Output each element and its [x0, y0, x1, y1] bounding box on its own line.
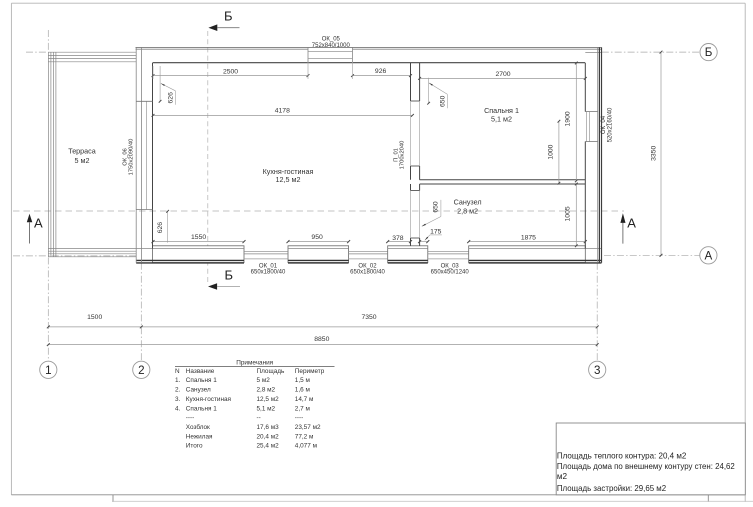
svg-text:1875: 1875: [521, 235, 536, 242]
svg-text:Б: Б: [225, 268, 234, 283]
svg-text:1750х2090/40: 1750х2090/40: [128, 139, 134, 176]
svg-text:3350: 3350: [650, 146, 657, 161]
svg-text:1.: 1.: [175, 377, 181, 384]
svg-text:3: 3: [594, 364, 600, 377]
svg-text:ОК_01: ОК_01: [259, 263, 278, 269]
svg-text:650: 650: [439, 95, 446, 107]
svg-text:4.: 4.: [175, 405, 181, 412]
svg-text:Периметр: Периметр: [295, 368, 325, 375]
svg-text:1500: 1500: [87, 314, 102, 321]
svg-text:2700: 2700: [495, 71, 510, 78]
svg-text:----: ----: [295, 415, 304, 422]
svg-text:5 м2: 5 м2: [257, 377, 271, 384]
svg-text:12,5 м2: 12,5 м2: [257, 396, 280, 403]
svg-text:П_01: П_01: [394, 148, 400, 162]
svg-text:520х2160/40: 520х2160/40: [607, 107, 613, 142]
svg-text:Итого: Итого: [186, 443, 203, 450]
svg-text:8850: 8850: [314, 336, 329, 343]
svg-text:2,8 м2: 2,8 м2: [457, 206, 478, 215]
svg-text:Площадь застройки: 29,65 м2: Площадь застройки: 29,65 м2: [557, 484, 667, 493]
svg-text:2,7 м: 2,7 м: [295, 405, 310, 412]
svg-text:650х1800/40: 650х1800/40: [350, 270, 385, 276]
svg-text:3.: 3.: [175, 396, 181, 403]
svg-text:950: 950: [311, 234, 323, 241]
svg-text:ОК_02: ОК_02: [358, 263, 377, 269]
svg-text:1005: 1005: [564, 206, 571, 221]
svg-text:Б: Б: [705, 46, 713, 59]
svg-text:ОК_05: ОК_05: [322, 37, 341, 43]
svg-text:5,1 м2: 5,1 м2: [491, 115, 512, 124]
svg-text:650: 650: [432, 201, 439, 213]
svg-text:2.: 2.: [175, 387, 181, 394]
svg-text:4,077 м: 4,077 м: [295, 443, 317, 450]
svg-text:7350: 7350: [361, 314, 376, 321]
svg-text:Хозблок: Хозблок: [186, 423, 210, 431]
svg-text:Площадь: Площадь: [257, 368, 285, 375]
svg-text:378: 378: [392, 235, 404, 242]
svg-text:Терраса: Терраса: [68, 147, 96, 156]
svg-text:Санузел: Санузел: [186, 387, 211, 394]
svg-text:--: --: [257, 415, 261, 422]
svg-text:626: 626: [157, 222, 164, 234]
svg-text:1,6 м: 1,6 м: [295, 387, 310, 394]
svg-text:Б: Б: [224, 8, 233, 23]
svg-text:926: 926: [375, 68, 387, 75]
svg-text:ОК_03: ОК_03: [441, 263, 460, 269]
svg-text:Кухня-гостиная: Кухня-гостиная: [186, 396, 232, 403]
svg-text:650х450/1240: 650х450/1240: [431, 270, 470, 276]
svg-text:ОК_04: ОК_04: [601, 115, 607, 134]
svg-text:Спальня 1: Спальня 1: [186, 405, 217, 412]
svg-text:77,2 м: 77,2 м: [295, 433, 314, 440]
svg-text:17,6 м3: 17,6 м3: [257, 424, 280, 431]
svg-text:м2: м2: [557, 472, 568, 481]
svg-text:1: 1: [45, 364, 51, 377]
svg-text:1000: 1000: [548, 144, 555, 159]
svg-text:А: А: [627, 216, 636, 231]
svg-text:Площадь теплого контура: 20,4: Площадь теплого контура: 20,4 м2: [557, 452, 687, 461]
svg-text:752х840/1000: 752х840/1000: [312, 43, 351, 49]
svg-text:1900: 1900: [565, 111, 572, 126]
svg-text:Площадь дома по внешнему конту: Площадь дома по внешнему контуру стен: 2…: [557, 462, 735, 471]
svg-text:23,57 м2: 23,57 м2: [295, 424, 321, 431]
svg-text:Санузел: Санузел: [454, 197, 482, 206]
svg-text:25,4 м2: 25,4 м2: [257, 443, 280, 450]
svg-text:1700х2040: 1700х2040: [400, 141, 406, 170]
svg-text:626: 626: [168, 92, 175, 104]
svg-text:Спальня 1: Спальня 1: [484, 106, 519, 115]
svg-text:5 м2: 5 м2: [75, 156, 90, 165]
svg-text:N: N: [175, 368, 180, 375]
svg-text:2: 2: [138, 364, 144, 377]
svg-text:5,1 м2: 5,1 м2: [257, 405, 276, 412]
svg-text:Нежилая: Нежилая: [186, 433, 213, 440]
svg-text:650х1800/40: 650х1800/40: [251, 270, 286, 276]
svg-text:Примечания: Примечания: [236, 360, 273, 367]
svg-text:2500: 2500: [223, 68, 238, 75]
svg-text:14,7 м: 14,7 м: [295, 396, 314, 403]
svg-text:----: ----: [186, 415, 195, 422]
svg-text:1550: 1550: [191, 234, 206, 241]
svg-text:12,5 м2: 12,5 м2: [276, 175, 301, 184]
svg-text:1,5 м: 1,5 м: [295, 377, 310, 384]
svg-text:Спальня 1: Спальня 1: [186, 377, 217, 384]
svg-text:175: 175: [430, 228, 442, 235]
svg-text:Название: Название: [186, 368, 215, 375]
svg-text:20,4 м2: 20,4 м2: [257, 433, 280, 440]
svg-text:4178: 4178: [275, 108, 290, 115]
svg-text:2,8 м2: 2,8 м2: [257, 387, 276, 394]
svg-text:А: А: [34, 216, 43, 231]
svg-text:А: А: [705, 249, 713, 262]
